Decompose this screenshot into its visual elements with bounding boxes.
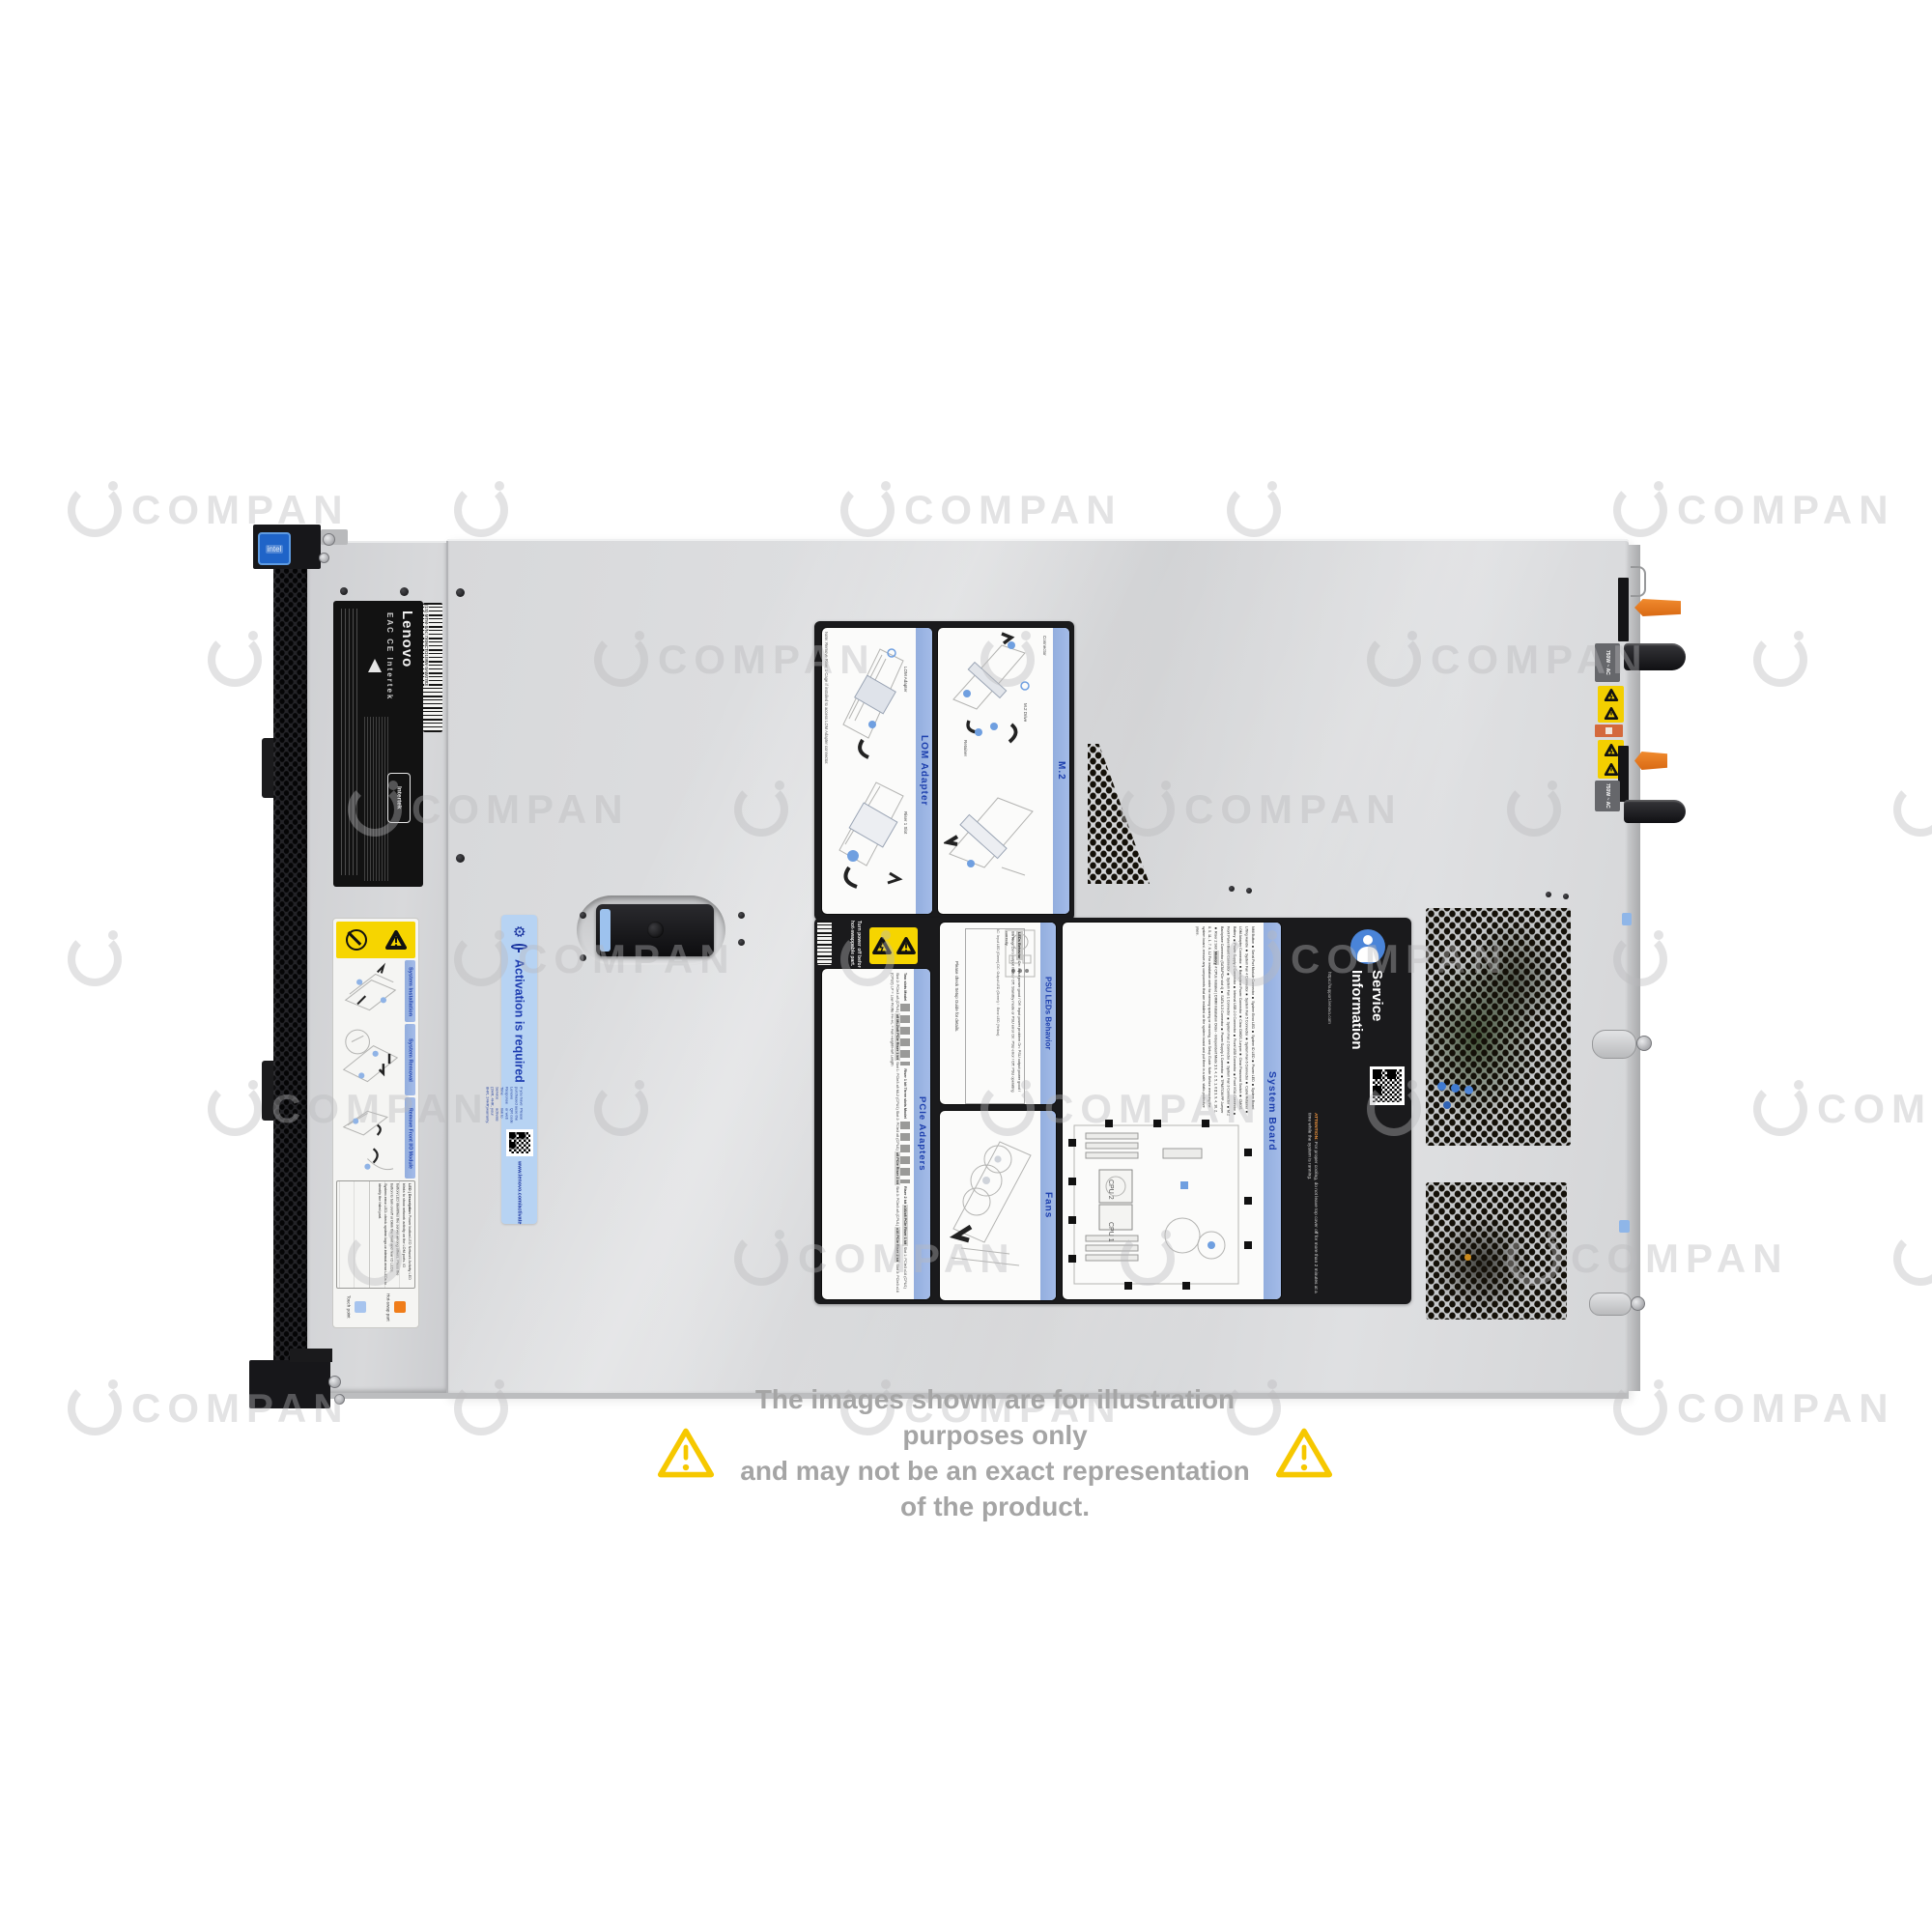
warning-triangle-icon: [1604, 763, 1619, 776]
warning-triangle-icon: [385, 930, 407, 950]
psu-pull-wire: [1631, 566, 1646, 597]
activation-instruction: Please use the QR code or web link to ac…: [515, 1108, 525, 1124]
pcie-model-label: Riser 1 kit: [903, 1068, 907, 1086]
warning-triangle-icon: [1604, 707, 1619, 720]
cover-hole: [1563, 894, 1569, 899]
watermark-tile: COMPAN: [1613, 483, 1895, 537]
attention-title: ATTENTION:: [1313, 1113, 1318, 1141]
watermark-logo-icon: [1753, 1082, 1807, 1136]
fans-title-band: Fans: [1040, 1111, 1056, 1300]
pcie-model-label: Riser 2 kit: [903, 1186, 907, 1204]
pcie-kit-name: x8 PCIe Riser 2 kit: [895, 1151, 900, 1185]
rear-latch-1: [1592, 1030, 1636, 1059]
pcie-model-label: Two slots Model: [903, 973, 907, 1001]
psu-warning-label-1: [1598, 686, 1624, 723]
m2-card: Connector M.2 Drive Retainer M.2: [938, 628, 1069, 914]
front-io-led-table: LED | Description Power button/LED Netwo…: [336, 1180, 415, 1289]
intel-badge-label: intel: [266, 545, 284, 554]
intertek-mark: Intertek: [387, 773, 411, 823]
watermark-logo-icon: [208, 1082, 262, 1136]
memory-title: Memory: [1213, 951, 1219, 966]
section-system-removal: System Removal: [336, 1024, 415, 1095]
vent-speck: [1464, 1254, 1471, 1261]
chassis-rear-wall: [1629, 545, 1640, 1391]
serial-text: (1S) MTM-S/N: 7X06CTO1WW-SAWJ783: [424, 605, 429, 686]
section-title: System Installation: [408, 967, 413, 1016]
service-information-icon: [1350, 929, 1385, 964]
led-row: System error LED: check system logs or i…: [378, 1183, 387, 1285]
pcie-title-band: PCIe Adapters: [914, 969, 930, 1299]
rear-thumbscrew-2: [1631, 1296, 1645, 1311]
clock-icon: [511, 944, 527, 950]
cover-hole: [1246, 888, 1252, 894]
shock-warning-icon: [1604, 689, 1619, 701]
legend-hot-swap-label: Hot-swap part: [386, 1293, 391, 1321]
section-remove-front-io: Remove Front I/O Module: [336, 1097, 415, 1179]
latch-screw-dot: [580, 954, 586, 961]
cpu2-label: CPU 2: [1107, 1179, 1114, 1200]
rear-vent-upper: [1426, 908, 1571, 1146]
psu-note: Please check Setup Guide for details.: [946, 961, 959, 1096]
disclaimer-warning-icon-right: [1275, 1426, 1333, 1480]
pcie-kit-name: x16/x8 PCIe Riser 1 kit: [902, 1205, 908, 1245]
watermark-logo-icon: [1613, 483, 1667, 537]
psu-led-row: On: Input power good / Off: Input power …: [1017, 961, 1022, 1041]
pcie-model-label: Three slots Model: [903, 1088, 907, 1119]
warning-mini: [368, 659, 382, 672]
activation-title: Activation is required: [513, 959, 526, 1083]
latch-screw-dot: [738, 912, 745, 919]
psu-wattage-1: 750W ~ AC: [1605, 650, 1610, 675]
cover-hole: [1229, 886, 1235, 892]
label-microtext-texture: [364, 717, 389, 881]
pcie-kit-name: x8 ML2/x8 PCIe Riser 1 kit: [895, 1013, 900, 1061]
psu-leds-card: AC: Input LED (Green) DC: Output LED (Gr…: [940, 923, 1056, 1104]
ear-screw-4: [334, 1394, 345, 1405]
psu-handle-1: [1624, 643, 1686, 670]
watermark-logo-icon: [454, 483, 508, 537]
fans-card: Fans: [940, 1111, 1056, 1300]
system-board-title-band: System Board: [1264, 923, 1281, 1299]
lom-title-band: LOM Adapter: [916, 628, 932, 914]
cert-marks-text: EAC CE Intertek: [385, 612, 394, 700]
lom-caption-1: LOM Adapter: [903, 667, 908, 693]
ear-screw-2: [319, 553, 329, 563]
power-warning-label: [869, 927, 918, 964]
memory-row-cpus2: 2: [1214, 1090, 1218, 1092]
psu-label-1: 750W ~ AC: [1595, 643, 1620, 682]
shock-warning-icon: [1604, 744, 1619, 756]
attention-block: ATTENTION: For proper cooling, do not le…: [1293, 1113, 1318, 1294]
heatsink-dot: [1451, 1084, 1460, 1093]
m2-diagram-top: [944, 632, 1040, 767]
watermark-logo-icon: [1753, 633, 1807, 687]
ear-screw-1: [323, 533, 335, 546]
heatsink-dot: [1437, 1082, 1446, 1091]
activation-note: If you have purchased a Lenovo Response …: [515, 1087, 525, 1108]
rear-latch-2: [1589, 1293, 1632, 1316]
lom-caption-2: Riser 1 Slot: [903, 811, 908, 834]
system-board-title: System Board: [1266, 1071, 1278, 1151]
heatsink-dot: [1464, 1086, 1473, 1094]
cover-screw: [400, 587, 409, 596]
lom-adapter-card: Note: Remove Riser 1 Cage if installed t…: [822, 628, 932, 914]
disclaimer: The images shown are for illustration pu…: [657, 1381, 1333, 1524]
watermark-text: COMPAN: [1817, 1086, 1932, 1132]
psu-led-table: LEDs Behavior On: Input power good / Off…: [965, 928, 1025, 1104]
riser-slot-diagram: [900, 1122, 910, 1183]
watermark-tile: COMPAN: [1753, 1082, 1932, 1136]
watermark-logo-icon: [68, 1381, 122, 1435]
watermark-text: COMPAN: [904, 487, 1122, 533]
lom-diagram-bottom: [832, 773, 909, 898]
watermark-tile: [1893, 1232, 1932, 1286]
latch-screw: [647, 922, 664, 938]
m2-title: M.2: [1056, 761, 1066, 781]
led-row: Power button/LED: [408, 1215, 412, 1245]
hot-swap-swatch: [394, 1301, 406, 1313]
activation-url: www.lenovo.com/activate: [517, 1161, 523, 1224]
lom-diagram-top: [834, 632, 911, 765]
fans-title: Fans: [1043, 1192, 1054, 1218]
warning-triangle-icon: [896, 937, 916, 954]
section-title: System Removal: [408, 1038, 413, 1082]
memory-row-order1: 3, 4, 2, 5, 1, 6: [1214, 1067, 1218, 1089]
m2-caption-retainer: Retainer: [963, 740, 968, 756]
watermark-tile: [208, 633, 262, 687]
rear-touch-point-1: [1622, 913, 1632, 925]
lom-title: LOM Adapter: [919, 735, 929, 806]
gear-icon: ⚙: [511, 924, 528, 939]
rack-ear-bottom-step: [290, 1349, 332, 1362]
memory-headers: # CPUs Installed | DIMM Installation Ord…: [1214, 966, 1218, 1064]
cover-screw: [456, 588, 465, 597]
watermark-logo-icon: [1893, 782, 1932, 837]
watermark-tile: COMPAN: [840, 483, 1122, 537]
activation-qr-code: [506, 1129, 533, 1156]
system-board-connector-list: NMI Button ■ Serial Port Module Connecto…: [1066, 926, 1256, 1116]
watermark-logo-icon: [840, 483, 895, 537]
disclaimer-line-2: and may not be an exact representation o…: [730, 1453, 1260, 1524]
section-title: Remove Front I/O Module: [408, 1108, 413, 1169]
latch-screw-dot: [580, 912, 586, 919]
cpu1-label: CPU 1: [1107, 1222, 1114, 1242]
cover-hole: [1546, 892, 1551, 897]
rear-vent-lower: [1426, 1182, 1567, 1320]
lenovo-regulatory-label: Lenovo EAC CE Intertek Intertek: [333, 601, 423, 887]
activation-sticker: ⚙ Activation is required If you have pur…: [501, 915, 537, 1224]
legend-touch-point-label: Touch point: [347, 1295, 352, 1319]
rear-touch-point-2: [1619, 1220, 1630, 1233]
rear-thumbscrew-1: [1636, 1036, 1652, 1051]
pcie-adapters-card: Two slots Model Riser 1 kit Three slots …: [822, 969, 930, 1299]
latch-screw-dot: [738, 939, 745, 946]
pcie-abbreviations: LP = Low Profile FH-HL = Full Height/Hal…: [890, 986, 894, 1066]
no-touch-icon: [346, 929, 367, 951]
watermark-tile: [454, 483, 508, 537]
bezel-latch-top: [262, 738, 273, 798]
section-system-installation: System Installation: [336, 960, 415, 1022]
psu-title-band: PSU LEDs Behavior: [1040, 923, 1056, 1104]
bezel-latch-bottom: [262, 1061, 273, 1121]
front-bezel: [273, 527, 307, 1366]
connector-list-text: NMI Button ■ Serial Port Module Connecto…: [1214, 926, 1255, 1116]
memory-footnote: For installation order for memory sparin…: [1207, 956, 1211, 1066]
panel-barcode: [817, 921, 832, 965]
m2-title-band: M.2: [1053, 628, 1069, 914]
system-board-diagram: CPU 1 CPU 2: [1066, 1120, 1260, 1292]
intel-xeon-badge: intel: [258, 532, 291, 565]
m2-caption-drive: M.2 Drive: [1023, 703, 1028, 722]
watermark-logo-icon: [68, 483, 122, 537]
cover-screw: [340, 587, 348, 595]
psu-title: PSU LEDs Behavior: [1044, 977, 1053, 1050]
product-photo: intel Lenovo EAC CE Intertek Intertek (1…: [0, 0, 1932, 1932]
lenovo-logo: Lenovo: [399, 611, 415, 668]
label-legend: Touch point Hot-swap part: [336, 1291, 415, 1323]
watermark-tile: COMPAN: [1613, 1381, 1895, 1435]
psu-table-title: LEDs Behavior: [1016, 931, 1023, 960]
m2-diagram-bottom: [944, 779, 1040, 904]
psu-handle-2: [1624, 800, 1686, 823]
cover-screw: [456, 854, 465, 863]
m2-caption-connector: Connector: [1042, 636, 1047, 656]
riser-slot-diagram: [900, 1004, 910, 1065]
warning-triangle-icon: [872, 937, 892, 954]
lom-note: Note: Remove Riser 1 Cage if installed t…: [824, 632, 829, 908]
watermark-tile: [1227, 483, 1281, 537]
psu-body-1: [1618, 578, 1629, 641]
pcie-kit-slots: Slot 1: PCIe3 x8 ML2 (CPU1) Slot 2: PCIe…: [895, 1062, 899, 1151]
psu-label-2: 750W ~ AC: [1595, 781, 1620, 811]
fans-diagram: [942, 1113, 1038, 1296]
watermark-tile: [68, 932, 122, 986]
rack-ear-bottom: [249, 1360, 330, 1408]
serial-barcode: (1S) MTM-S/N: 7X06CTO1WW-SAWJ783: [423, 603, 442, 732]
watermark-logo-icon: [1227, 483, 1281, 537]
watermark-text: COMPAN: [1677, 487, 1895, 533]
service-information-qr: [1370, 1066, 1405, 1105]
service-information-url: https://support.lenovo.com: [1327, 972, 1332, 1088]
pcie-title: PCIe Adapters: [917, 1096, 927, 1172]
no-touch-warning-strip: [336, 922, 415, 958]
psu-release-tab-1: [1634, 599, 1681, 616]
system-board-card: NMI Button ■ Serial Port Module Connecto…: [1063, 923, 1281, 1299]
pcie-kit-name: x16 PCIe Riser 2 kit: [895, 1227, 900, 1263]
ear-screw-3: [328, 1376, 341, 1388]
disclaimer-warning-icon-left: [657, 1426, 715, 1480]
led-table-header: LED | Description: [408, 1183, 412, 1214]
watermark-tile: [1753, 633, 1807, 687]
disclaimer-line-1: The images shown are for illustration pu…: [730, 1381, 1260, 1453]
memory-row-cpus1: 1: [1214, 1065, 1218, 1066]
front-service-label: System Installation System Removal Remov…: [332, 918, 419, 1328]
latch-touch-point: [600, 909, 611, 952]
watermark-logo-icon: [68, 932, 122, 986]
pcie-kit-slots: Slot 3: PCIe3 x8 (CPU1): [895, 1186, 899, 1226]
watermark-logo-icon: [1893, 1232, 1932, 1286]
watermark-logo-icon: [208, 633, 262, 687]
label-microtext-texture: [341, 609, 358, 875]
psu-red-label: [1595, 724, 1623, 737]
heatsink-dot: [1443, 1101, 1451, 1109]
psu-wattage-2: 750W ~ AC: [1605, 783, 1610, 809]
watermark-tile: COMPAN: [1893, 782, 1932, 837]
watermark-text: COMPAN: [1677, 1385, 1895, 1432]
touch-point-swatch: [355, 1301, 366, 1313]
